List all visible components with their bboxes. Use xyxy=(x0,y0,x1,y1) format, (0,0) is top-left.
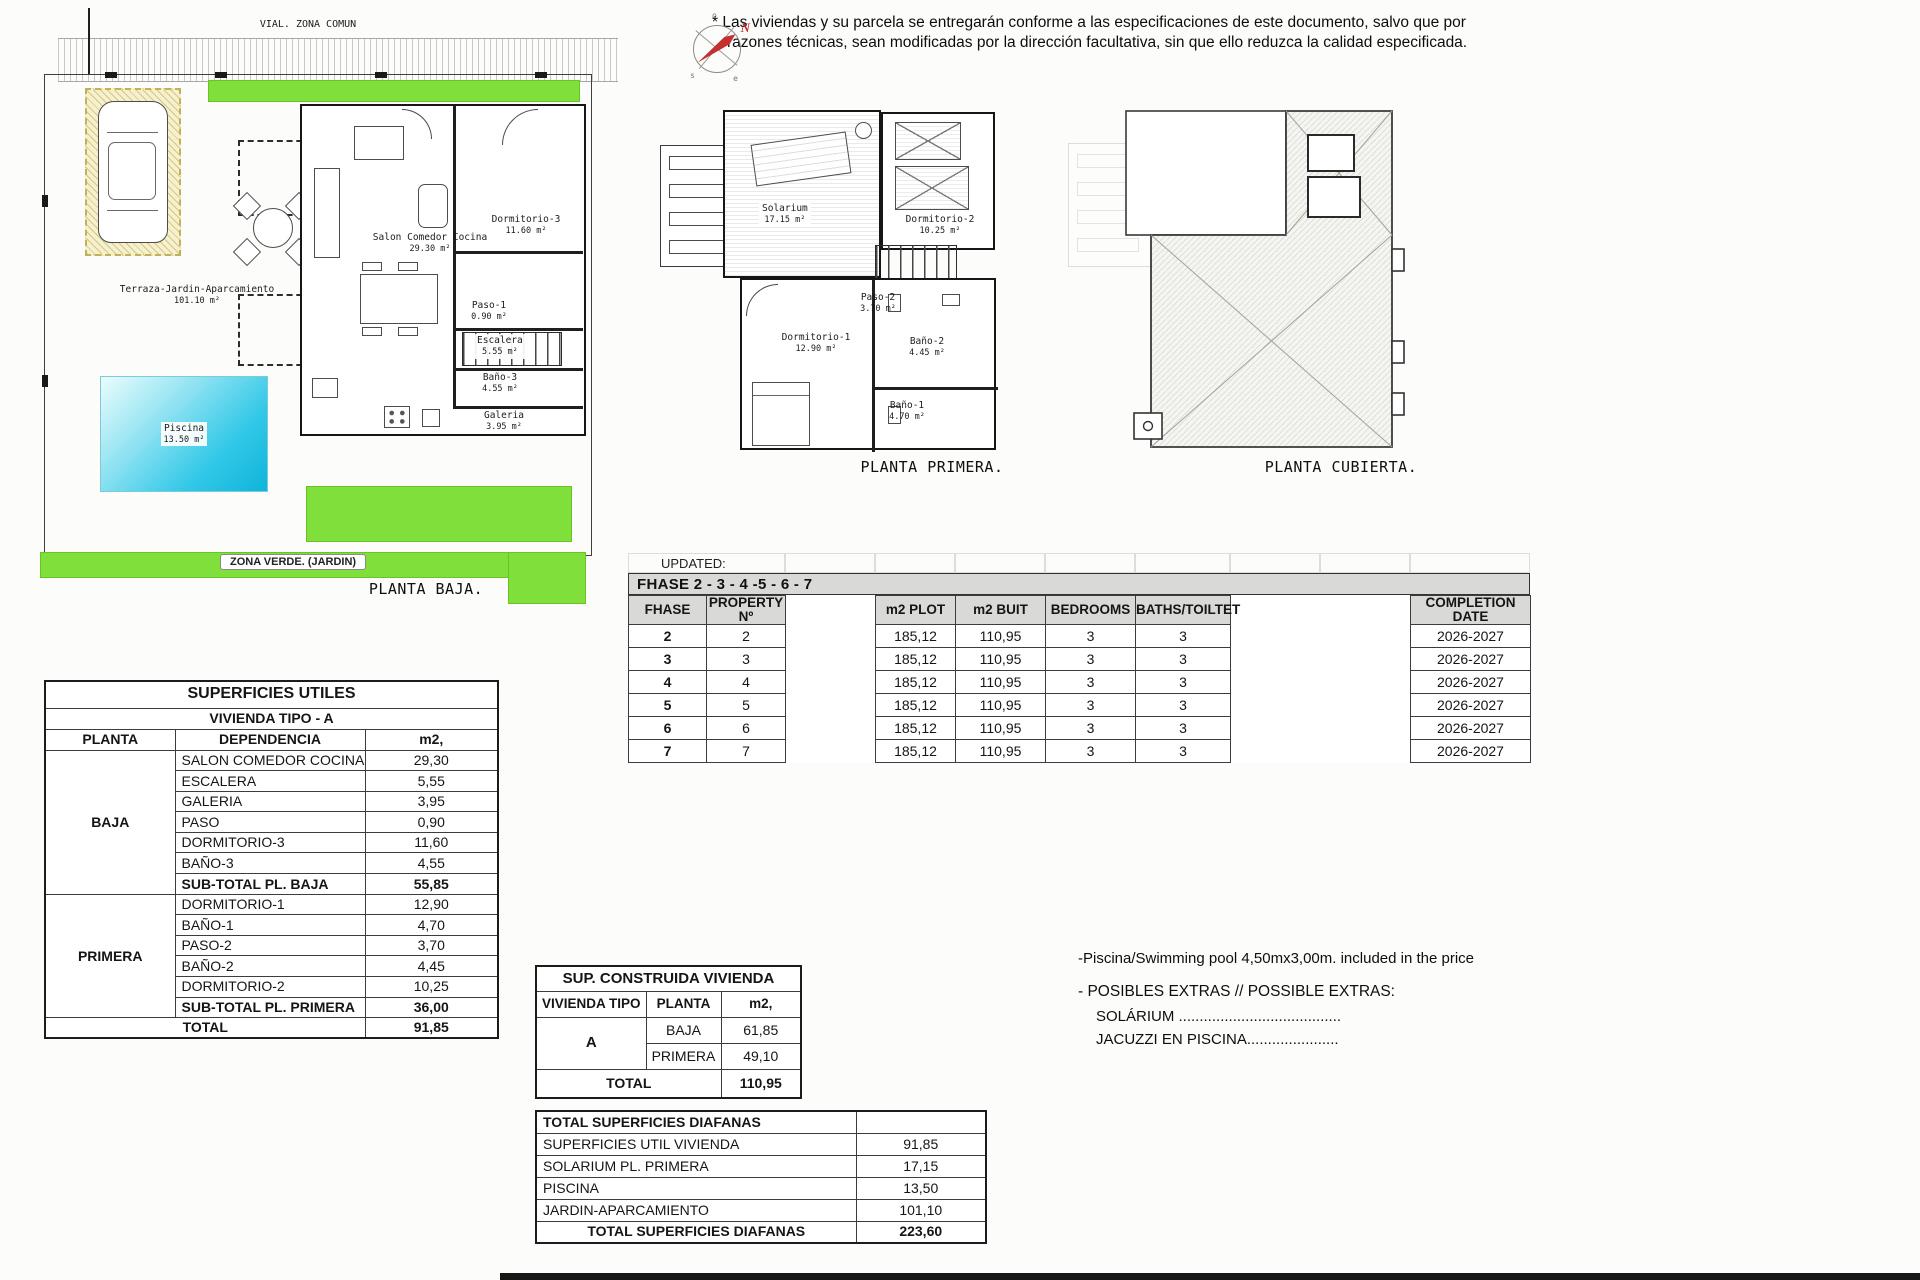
table-row: PISCINA 13,50 xyxy=(536,1177,986,1199)
car-icon xyxy=(98,101,168,243)
sun-lounger-icon xyxy=(751,132,852,187)
cell-m2: 49,10 xyxy=(721,1043,801,1069)
room-label-dormitorio-1: Dormitorio-1 12.90 m² xyxy=(756,332,876,355)
wall xyxy=(88,8,90,74)
col-header-m2: m2, xyxy=(365,729,498,750)
table-title: SUPERFICIES UTILES xyxy=(45,681,498,708)
room-label-galeria: Galeria 3.95 m² xyxy=(464,410,544,433)
terraza-label: Terraza-Jardin-Aparcamiento 101.10 m² xyxy=(102,284,292,307)
empty-cell xyxy=(786,740,876,763)
house-ground-floor: Salon Comedor Cocina 29.30 m² Dormitorio… xyxy=(300,104,586,436)
table-row: 3 3 185,12 110,95 3 3 2026-2027 xyxy=(629,648,1531,671)
room-area: 3.95 m² xyxy=(464,422,544,433)
room-label-escalera: Escalera 5.55 m² xyxy=(474,334,526,359)
kitchen-unit-icon xyxy=(422,409,440,427)
table-row: 6 6 185,12 110,95 3 3 2026-2027 xyxy=(629,717,1531,740)
cell-fhase: 7 xyxy=(629,740,707,763)
room-name: Baño-3 xyxy=(483,372,517,383)
room-area: 3.70 m² xyxy=(846,304,910,315)
piscina-label: Piscina 13.50 m² xyxy=(161,422,208,447)
room-name: Dormitorio-1 xyxy=(782,332,851,343)
planter-icon xyxy=(669,240,731,254)
cell-baths: 3 xyxy=(1136,648,1231,671)
cell-baths: 3 xyxy=(1136,625,1231,648)
table-row: SUPERFICIES UTIL VIVIENDA 91,85 xyxy=(536,1133,986,1155)
wall-pier xyxy=(42,375,48,387)
empty-cell xyxy=(1231,625,1411,648)
cell-bedrooms: 3 xyxy=(1046,671,1136,694)
updated-row: UPDATED: 15/09/2025 xyxy=(628,553,1530,573)
empty-cell xyxy=(786,717,876,740)
chair-icon xyxy=(398,262,418,271)
title-row: TOTAL SUPERFICIES DIAFANAS xyxy=(536,1111,986,1133)
cell-built: 110,95 xyxy=(956,625,1046,648)
cell-label: SOLARIUM PL. PRIMERA xyxy=(536,1155,856,1177)
room-area: 12.90 m² xyxy=(756,344,876,355)
cell-label: SUPERFICIES UTIL VIVIENDA xyxy=(536,1133,856,1155)
cell-dependencia: PASO-2 xyxy=(175,935,365,956)
plan-caption-baja: PLANTA BAJA. xyxy=(340,580,512,598)
armchair-icon xyxy=(354,126,404,160)
cell-baths: 3 xyxy=(1136,671,1231,694)
cell-subtotal-label: SUB-TOTAL PL. PRIMERA xyxy=(175,997,365,1018)
room-name: Galeria xyxy=(484,410,524,421)
cell-completion: 2026-2027 xyxy=(1411,694,1531,717)
cell-dependencia: GALERIA xyxy=(175,791,365,812)
green-step xyxy=(508,552,586,604)
cell-baths: 3 xyxy=(1136,694,1231,717)
cell-plot: 185,12 xyxy=(876,717,956,740)
cell-total-label: TOTAL xyxy=(536,1069,721,1098)
car-rear-window xyxy=(107,210,158,211)
updated-label: UPDATED: 15/09/2025 xyxy=(628,553,785,573)
fhase-title-bar: FHASE 2 - 3 - 4 -5 - 6 - 7 xyxy=(628,573,1530,595)
bed-icon xyxy=(895,166,969,210)
outdoor-table-icon xyxy=(253,208,293,248)
planta-group-primera: PRIMERA xyxy=(45,894,175,1018)
coffee-table-icon xyxy=(418,184,448,228)
first-floor-block: Paso-2 3.70 m² Dormitorio-1 12.90 m² Bañ… xyxy=(740,278,996,450)
compass-north-label: N xyxy=(741,20,750,36)
cell-planta: BAJA xyxy=(646,1017,721,1043)
empty-cell xyxy=(1410,553,1530,573)
total-row: TOTAL 110,95 xyxy=(536,1069,801,1098)
door-arc xyxy=(502,109,538,145)
cell-plot: 185,12 xyxy=(876,625,956,648)
kitchen-sink-icon xyxy=(312,378,338,398)
room-area: 0.90 m² xyxy=(452,312,526,323)
empty-cell xyxy=(786,648,876,671)
disclaimer-line-1: * Las viviendas y su parcela se entregar… xyxy=(712,13,1522,33)
col-header-m2: m2, xyxy=(721,991,801,1017)
plan-planta-cubierta: PLANTA CUBIERTA. xyxy=(1060,95,1432,490)
room-label-paso-1: Paso-1 0.90 m² xyxy=(452,300,526,323)
plan-planta-baja: VIAL. ZONA COMUN ZONA VERDE. (JARDIN) xyxy=(40,8,648,608)
cell-m2: 61,85 xyxy=(721,1017,801,1043)
empty-cell xyxy=(786,596,876,625)
plan-caption-cubierta: PLANTA CUBIERTA. xyxy=(1236,458,1446,476)
cell-m2: 91,85 xyxy=(856,1133,986,1155)
cell-dependencia: DORMITORIO-2 xyxy=(175,977,365,998)
empty-cell xyxy=(1231,740,1411,763)
room-area: 4.45 m² xyxy=(892,348,962,359)
room-label-bano-3: Baño-3 4.55 m² xyxy=(460,372,540,395)
compass-point-label: s xyxy=(690,71,695,80)
cell-baths: 3 xyxy=(1136,717,1231,740)
car-cabin xyxy=(108,142,156,200)
table-title: TOTAL SUPERFICIES DIAFANAS xyxy=(536,1111,856,1133)
col-header-fhase: FHASE xyxy=(629,596,707,625)
table-subtitle: VIVIENDA TIPO - A xyxy=(45,708,498,729)
cell-property: 7 xyxy=(707,740,786,763)
room-area: 29.30 m² xyxy=(320,244,540,255)
cell-fhase: 3 xyxy=(629,648,707,671)
cell-m2: 3,95 xyxy=(365,791,498,812)
cell-plot: 185,12 xyxy=(876,740,956,763)
empty-cell xyxy=(786,671,876,694)
extra-jacuzzi: JACUZZI EN PISCINA...................... xyxy=(1096,1031,1339,1048)
cell-planta: PRIMERA xyxy=(646,1043,721,1069)
wall xyxy=(453,368,583,371)
wall-pier xyxy=(42,195,48,207)
table-row: SOLARIUM PL. PRIMERA 17,15 xyxy=(536,1155,986,1177)
empty-cell xyxy=(786,694,876,717)
empty-cell xyxy=(955,553,1045,573)
cell-m2: 11,60 xyxy=(365,832,498,853)
bed-pillow-line xyxy=(753,395,809,396)
room-area: 4.70 m² xyxy=(872,412,942,423)
cell-total-m2: 110,95 xyxy=(721,1069,801,1098)
empty-cell xyxy=(786,625,876,648)
cell-bedrooms: 3 xyxy=(1046,694,1136,717)
planta-group-baja: BAJA xyxy=(45,750,175,894)
room-area: 4.55 m² xyxy=(460,384,540,395)
wall-pier xyxy=(535,72,547,78)
cell-m2: 29,30 xyxy=(365,750,498,771)
cell-m2: 4,55 xyxy=(365,853,498,874)
table-row: 2 2 185,12 110,95 3 3 2026-2027 xyxy=(629,625,1531,648)
room-name: Paso-1 xyxy=(472,300,506,311)
fhase-table: FHASE PROPERTY Nº m2 PLOT m2 BUIT BEDROO… xyxy=(628,595,1531,763)
room-name: Paso-2 xyxy=(861,292,895,303)
cell-completion: 2026-2027 xyxy=(1411,625,1531,648)
compass-point-label: e xyxy=(733,74,738,83)
piscina-name: Piscina xyxy=(164,423,204,434)
cell-label: PISCINA xyxy=(536,1177,856,1199)
plan-planta-primera: Solarium 17.15 m² Dormitorio-2 10.25 m² xyxy=(648,95,1016,487)
green-area-bottom xyxy=(306,486,572,542)
cell-property: 5 xyxy=(707,694,786,717)
room-label-dormitorio-3: Dormitorio-3 11.60 m² xyxy=(470,214,582,237)
col-header-tipo: VIVIENDA TIPO xyxy=(536,991,646,1017)
cell-property: 2 xyxy=(707,625,786,648)
cell-dependencia: SALON COMEDOR COCINA xyxy=(175,750,365,771)
side-table-icon xyxy=(855,122,872,139)
empty-cell xyxy=(1231,648,1411,671)
table-row: PRIMERA DORMITORIO-1 12,90 xyxy=(45,894,498,915)
scan-edge-bar xyxy=(500,1273,1920,1280)
cell-built: 110,95 xyxy=(956,648,1046,671)
disclaimer-note: * Las viviendas y su parcela se entregar… xyxy=(712,13,1522,53)
room-label-dormitorio-2: Dormitorio-2 10.25 m² xyxy=(895,214,985,237)
empty-cell xyxy=(1231,694,1411,717)
empty-cell xyxy=(785,553,875,573)
cell-tipo: A xyxy=(536,1017,646,1069)
cell-dependencia: BAÑO-3 xyxy=(175,853,365,874)
terraza-area: 101.10 m² xyxy=(102,296,292,307)
col-header-completion: COMPLETION DATE xyxy=(1411,596,1531,625)
extra-solarium: SOLÁRIUM ...............................… xyxy=(1096,1008,1341,1025)
room-area: 11.60 m² xyxy=(470,226,582,237)
room-name: Dormitorio-3 xyxy=(492,214,561,225)
cell-m2: 4,45 xyxy=(365,956,498,977)
chair-icon xyxy=(362,327,382,336)
wall-pier xyxy=(375,72,387,78)
table-row: 7 7 185,12 110,95 3 3 2026-2027 xyxy=(629,740,1531,763)
cell-completion: 2026-2027 xyxy=(1411,671,1531,694)
zona-verde-label: ZONA VERDE. (JARDIN) xyxy=(220,554,366,570)
parking-area xyxy=(85,88,181,256)
cell-dependencia: BAÑO-2 xyxy=(175,956,365,977)
planter-icon xyxy=(669,212,731,226)
chair-icon xyxy=(398,327,418,336)
cell-plot: 185,12 xyxy=(876,694,956,717)
empty-cell xyxy=(875,553,955,573)
cell-built: 110,95 xyxy=(956,717,1046,740)
cell-m2: 5,55 xyxy=(365,771,498,792)
cell-total-m2: 91,85 xyxy=(365,1018,498,1039)
cell-bedrooms: 3 xyxy=(1046,625,1136,648)
cell-property: 4 xyxy=(707,671,786,694)
room-label-solarium: Solarium 17.15 m² xyxy=(759,202,811,227)
room-label-bano-2: Baño-2 4.45 m² xyxy=(892,336,962,359)
cell-fhase: 2 xyxy=(629,625,707,648)
room-area: 10.25 m² xyxy=(895,226,985,237)
wall-pier xyxy=(105,72,117,78)
room-name: Baño-2 xyxy=(910,336,944,347)
room-area: 17.15 m² xyxy=(762,215,808,226)
table-title: SUP. CONSTRUIDA VIVIENDA xyxy=(536,966,801,991)
disclaimer-line-2: razones técnicas, sean modificadas por l… xyxy=(712,33,1522,53)
wall xyxy=(453,328,583,331)
piscina-area: 13.50 m² xyxy=(164,435,205,446)
cell-dependencia: ESCALERA xyxy=(175,771,365,792)
cell-m2: 0,90 xyxy=(365,812,498,833)
cell-bedrooms: 3 xyxy=(1046,648,1136,671)
room-name: Dormitorio-2 xyxy=(906,214,975,225)
cell-total-m2: 223,60 xyxy=(856,1221,986,1243)
cell-dependencia: PASO xyxy=(175,812,365,833)
table-row: A BAJA 61,85 xyxy=(536,1017,801,1043)
pool: Piscina 13.50 m² xyxy=(100,376,268,492)
roof-drawing xyxy=(1124,109,1410,455)
cell-property: 3 xyxy=(707,648,786,671)
room-area: 5.55 m² xyxy=(477,347,523,358)
vial-zona-comun-label: VIAL. ZONA COMUN xyxy=(228,19,388,32)
bed-icon xyxy=(752,382,810,446)
planter-icon xyxy=(669,156,731,170)
plan-sheet: * Las viviendas y su parcela se entregar… xyxy=(0,0,1920,1280)
cell-m2: 13,50 xyxy=(856,1177,986,1199)
extras-title: - POSIBLES EXTRAS // POSSIBLE EXTRAS: xyxy=(1078,983,1395,1001)
room-label-paso-2: Paso-2 3.70 m² xyxy=(846,292,910,315)
empty-cell xyxy=(1045,553,1135,573)
table-row: JARDIN-APARCAMIENTO 101,10 xyxy=(536,1199,986,1221)
terraza-name: Terraza-Jardin-Aparcamiento xyxy=(120,284,274,295)
door-arc xyxy=(746,284,778,316)
wall xyxy=(453,406,583,409)
cell-fhase: 5 xyxy=(629,694,707,717)
empty-cell xyxy=(1230,553,1320,573)
dining-table-icon xyxy=(360,274,438,324)
table-row: BAJA SALON COMEDOR COCINA 29,30 xyxy=(45,750,498,771)
planter-icon xyxy=(669,184,731,198)
chair-icon xyxy=(362,262,382,271)
construida-table: SUP. CONSTRUIDA VIVIENDA VIVIENDA TIPO P… xyxy=(535,965,802,1099)
cell-m2: 101,10 xyxy=(856,1199,986,1221)
cell-subtotal-m2: 36,00 xyxy=(365,997,498,1018)
north-compass-icon: N o s e xyxy=(688,20,746,78)
col-header-planta: PLANTA xyxy=(45,729,175,750)
cell-total-label: TOTAL xyxy=(45,1018,365,1039)
cell-total-label: TOTAL SUPERFICIES DIAFANAS xyxy=(536,1221,856,1243)
cell-m2: 4,70 xyxy=(365,915,498,936)
car-windshield xyxy=(107,132,158,133)
col-header-baths: BATHS/TOILTET xyxy=(1136,596,1231,625)
col-header-planta: PLANTA xyxy=(646,991,721,1017)
cell-completion: 2026-2027 xyxy=(1411,717,1531,740)
empty-cell xyxy=(1231,596,1411,625)
total-row: TOTAL SUPERFICIES DIAFANAS 223,60 xyxy=(536,1221,986,1243)
sink-icon xyxy=(942,294,960,306)
room-name: Solarium xyxy=(762,203,808,214)
dormitorio-2-room: Dormitorio-2 10.25 m² xyxy=(881,112,995,250)
cell-subtotal-label: SUB-TOTAL PL. BAJA xyxy=(175,874,365,895)
cell-dependencia: DORMITORIO-3 xyxy=(175,832,365,853)
cell-fhase: 4 xyxy=(629,671,707,694)
col-header-built: m2 BUIT xyxy=(956,596,1046,625)
wall xyxy=(872,387,998,390)
fhase-header-row: FHASE PROPERTY Nº m2 PLOT m2 BUIT BEDROO… xyxy=(629,596,1531,625)
cell-built: 110,95 xyxy=(956,694,1046,717)
col-header-plot: m2 PLOT xyxy=(876,596,956,625)
cell-property: 6 xyxy=(707,717,786,740)
cell-plot: 185,12 xyxy=(876,648,956,671)
col-header-dependencia: DEPENDENCIA xyxy=(175,729,365,750)
empty-cell xyxy=(856,1111,986,1133)
cell-built: 110,95 xyxy=(956,740,1046,763)
room-label-bano-1: Baño-1 4.70 m² xyxy=(872,400,942,423)
green-strip-top xyxy=(208,80,580,102)
cell-label: JARDIN-APARCAMIENTO xyxy=(536,1199,856,1221)
cell-dependencia: BAÑO-1 xyxy=(175,915,365,936)
cell-dependencia: DORMITORIO-1 xyxy=(175,894,365,915)
header-row: VIVIENDA TIPO PLANTA m2, xyxy=(536,991,801,1017)
cell-subtotal-m2: 55,85 xyxy=(365,874,498,895)
superficies-utiles-table: SUPERFICIES UTILES VIVIENDA TIPO - A PLA… xyxy=(44,680,499,1039)
table-row: 5 5 185,12 110,95 3 3 2026-2027 xyxy=(629,694,1531,717)
header-row: PLANTA DEPENDENCIA m2, xyxy=(45,729,498,750)
pool-note: -Piscina/Swimming pool 4,50mx3,00m. incl… xyxy=(1078,950,1474,967)
cell-completion: 2026-2027 xyxy=(1411,648,1531,671)
cell-fhase: 6 xyxy=(629,717,707,740)
cell-m2: 17,15 xyxy=(856,1155,986,1177)
total-row: TOTAL 91,85 xyxy=(45,1018,498,1039)
cell-plot: 185,12 xyxy=(876,671,956,694)
cell-m2: 12,90 xyxy=(365,894,498,915)
door-arc xyxy=(402,109,432,139)
cell-bedrooms: 3 xyxy=(1046,717,1136,740)
cell-baths: 3 xyxy=(1136,740,1231,763)
cell-m2: 3,70 xyxy=(365,935,498,956)
wall xyxy=(453,106,456,406)
wall-pier xyxy=(215,72,227,78)
col-header-property: PROPERTY Nº xyxy=(707,596,786,625)
empty-cell xyxy=(1231,671,1411,694)
empty-cell xyxy=(1135,553,1230,573)
compass-point-label: o xyxy=(712,11,717,20)
cell-bedrooms: 3 xyxy=(1046,740,1136,763)
empty-cell xyxy=(1320,553,1410,573)
cell-completion: 2026-2027 xyxy=(1411,740,1531,763)
empty-cell xyxy=(1231,717,1411,740)
cell-m2: 10,25 xyxy=(365,977,498,998)
wardrobe-icon xyxy=(895,122,961,160)
cell-built: 110,95 xyxy=(956,671,1046,694)
col-header-bedrooms: BEDROOMS xyxy=(1046,596,1136,625)
stove-icon xyxy=(384,406,410,428)
room-name: Baño-1 xyxy=(890,400,924,411)
solarium-room: Solarium 17.15 m² xyxy=(723,110,881,278)
plan-caption-primera: PLANTA PRIMERA. xyxy=(832,458,1032,476)
diafanas-table: TOTAL SUPERFICIES DIAFANAS SUPERFICIES U… xyxy=(535,1110,987,1244)
room-name: Escalera xyxy=(477,335,523,346)
table-row: 4 4 185,12 110,95 3 3 2026-2027 xyxy=(629,671,1531,694)
